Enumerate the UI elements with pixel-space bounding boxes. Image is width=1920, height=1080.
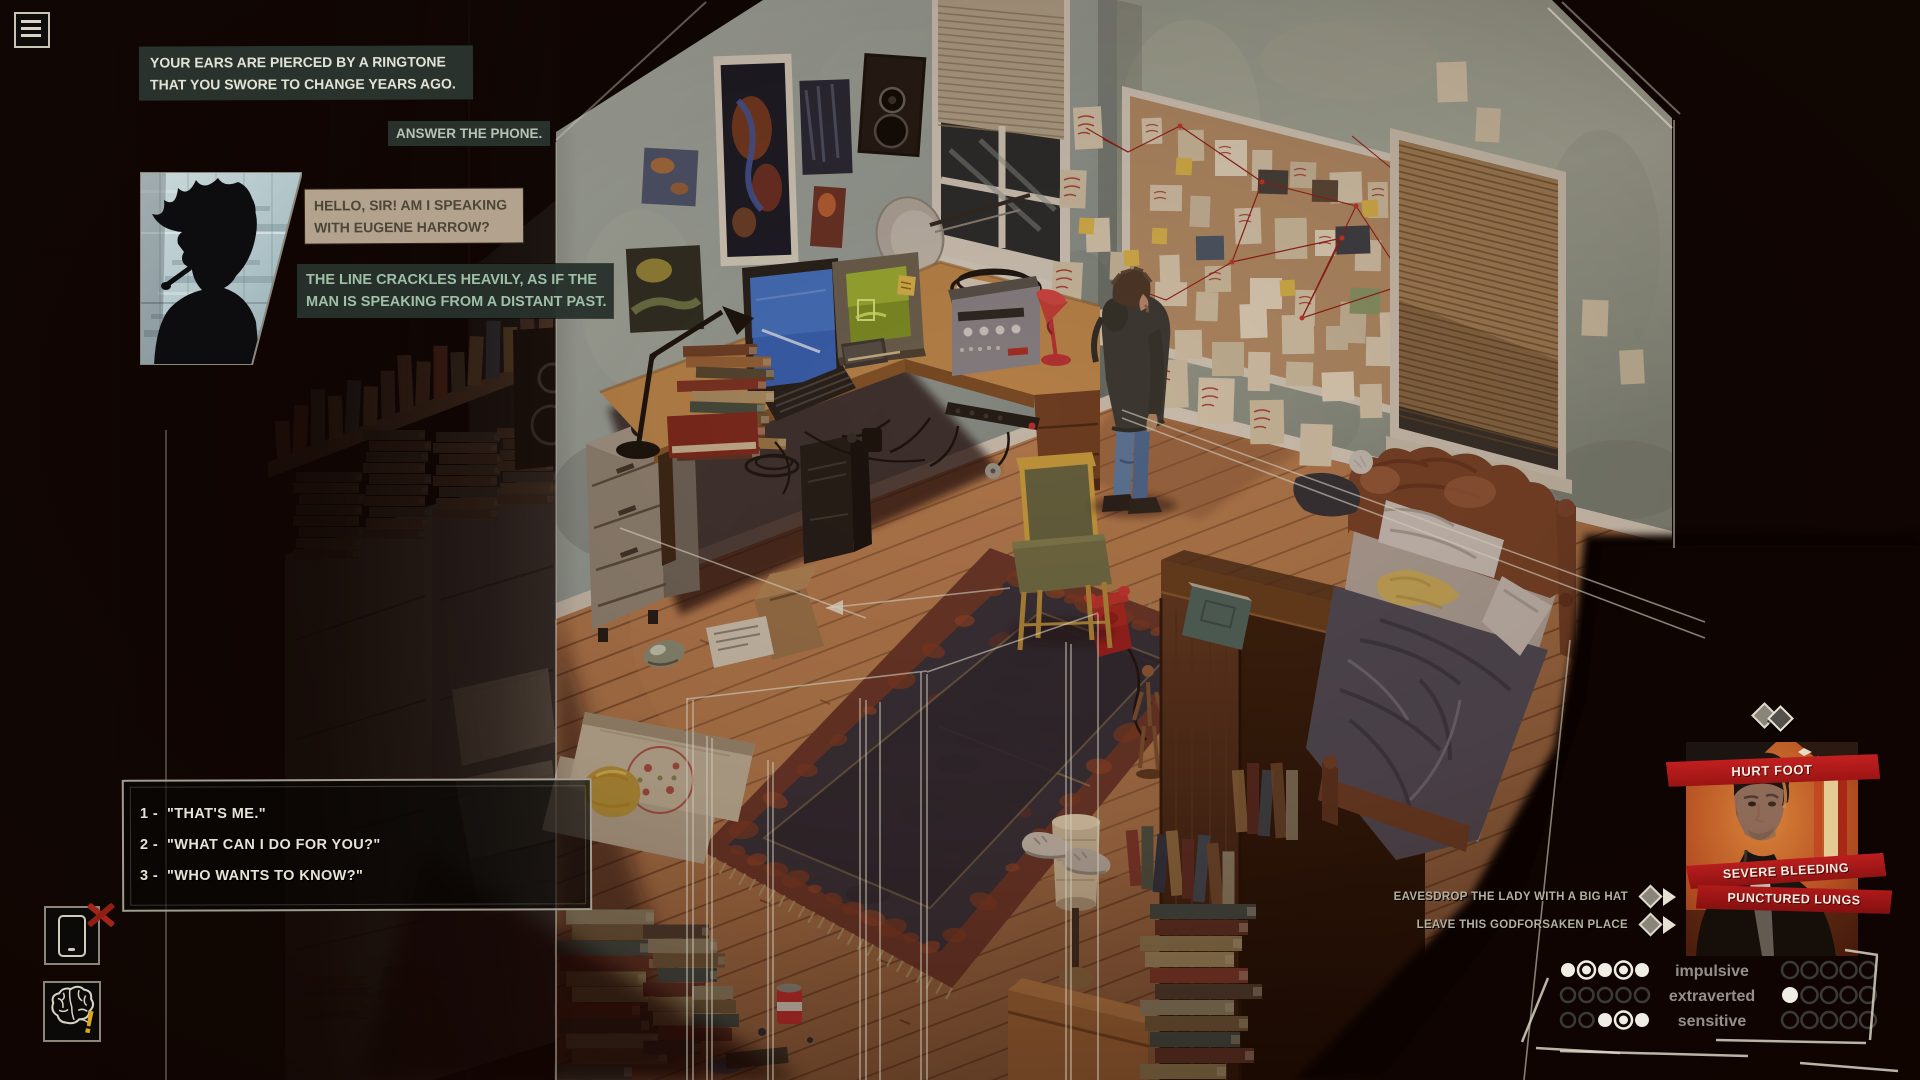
svg-text:impulsive: impulsive (1675, 963, 1749, 980)
svg-text:extraverted: extraverted (1669, 988, 1755, 1005)
svg-text:sensitive: sensitive (1678, 1013, 1747, 1030)
